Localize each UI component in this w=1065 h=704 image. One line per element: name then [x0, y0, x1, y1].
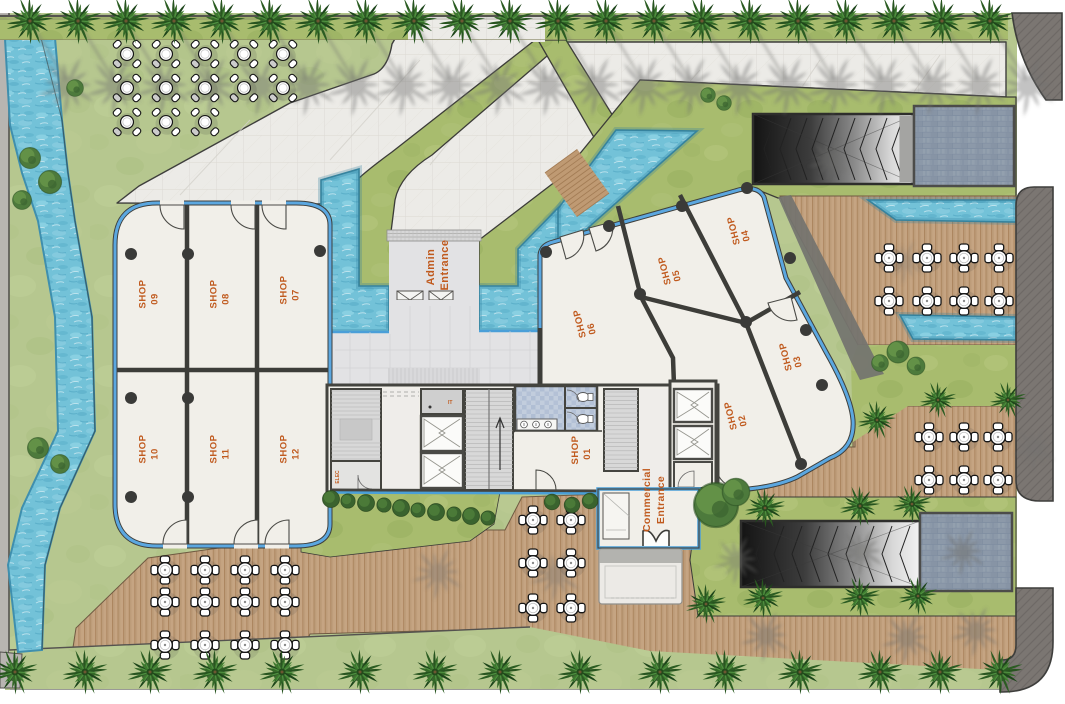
svg-text:SHOP: SHOP: [138, 434, 149, 463]
svg-text:09: 09: [150, 293, 161, 305]
svg-text:SHOP: SHOP: [570, 435, 581, 464]
svg-text:ELEC: ELEC: [335, 470, 341, 484]
svg-text:SHOP: SHOP: [138, 279, 149, 308]
svg-text:10: 10: [150, 448, 161, 460]
svg-text:IT: IT: [448, 400, 452, 406]
svg-text:Admin: Admin: [425, 249, 437, 286]
svg-text:SHOP: SHOP: [209, 279, 220, 308]
svg-text:08: 08: [221, 293, 232, 305]
svg-text:01: 01: [582, 448, 593, 460]
svg-text:SHOP: SHOP: [279, 434, 290, 463]
svg-text:07: 07: [291, 289, 302, 301]
svg-text:Entrance: Entrance: [655, 476, 667, 524]
svg-text:Commercial: Commercial: [641, 468, 653, 532]
svg-text:12: 12: [291, 448, 302, 460]
svg-text:11: 11: [221, 448, 232, 459]
svg-text:SHOP: SHOP: [209, 434, 220, 463]
svg-text:Entrance: Entrance: [439, 239, 451, 290]
svg-text:SHOP: SHOP: [279, 275, 290, 304]
